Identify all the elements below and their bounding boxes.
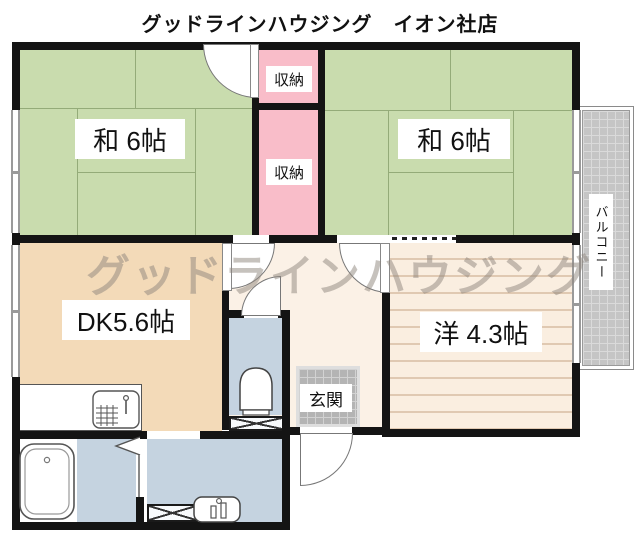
toilet-icon [240, 368, 272, 415]
label-western: 洋 4.3帖 [420, 312, 542, 352]
label-balcony: バルコニー [589, 194, 613, 290]
washbasin-icon [194, 497, 240, 522]
bathtub-icon [20, 444, 74, 519]
kitchen-sink-icon [93, 391, 139, 428]
label-storage-lower: 収納 [266, 159, 312, 185]
label-storage-upper: 収納 [266, 66, 312, 92]
page-title: グッドラインハウジング イオン社店 [0, 8, 640, 37]
label-tatami-left: 和 6帖 [75, 119, 185, 159]
folding-door-icon [116, 437, 140, 497]
label-tatami-right: 和 6帖 [398, 119, 510, 159]
watermark-text: グッドラインハウジング [86, 240, 592, 304]
label-dk: DK5.6帖 [62, 300, 190, 340]
label-entrance: 玄関 [300, 384, 352, 412]
floor-plan: グッドラインハウジング イオン社店 [0, 0, 640, 540]
